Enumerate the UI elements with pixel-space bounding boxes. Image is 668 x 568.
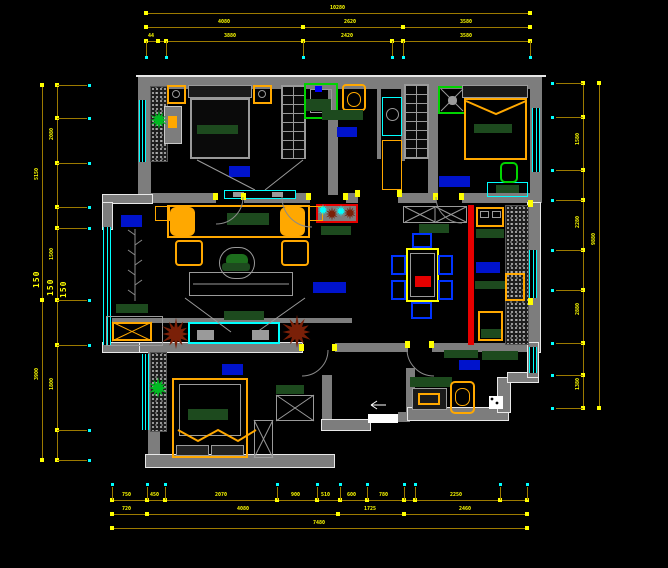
dimension-tick bbox=[40, 458, 44, 462]
door-marker bbox=[355, 190, 360, 197]
dimension-tick bbox=[597, 406, 601, 410]
witness-dot bbox=[551, 342, 554, 345]
extension-line bbox=[556, 290, 583, 291]
dimension-text: 2250 bbox=[450, 493, 462, 498]
extension-line bbox=[147, 487, 148, 500]
dimension-line bbox=[146, 27, 530, 28]
glazing-line bbox=[142, 100, 143, 162]
extension-line bbox=[57, 228, 87, 229]
bed-drawer bbox=[176, 445, 209, 456]
witness-dot bbox=[551, 374, 554, 377]
kitchen-slider bbox=[468, 205, 474, 345]
dimension-text: 750 bbox=[122, 493, 131, 498]
wall bbox=[103, 195, 152, 203]
witness-dot bbox=[88, 206, 91, 209]
witness-dot bbox=[551, 249, 554, 252]
dining-chair bbox=[412, 233, 432, 248]
dimension-text: 1580 bbox=[576, 133, 581, 145]
counter bbox=[444, 350, 478, 358]
extension-line bbox=[166, 41, 167, 57]
table-inner bbox=[410, 253, 435, 297]
coat-rack-branch bbox=[128, 250, 135, 255]
toilet-seat bbox=[347, 92, 361, 107]
dimension-text: 510 bbox=[321, 493, 330, 498]
washer-drum bbox=[386, 108, 399, 121]
dimension-line bbox=[112, 514, 527, 515]
witness-dot bbox=[88, 117, 91, 120]
closet-shelves bbox=[404, 84, 429, 159]
witness-dot bbox=[551, 169, 554, 172]
chair bbox=[500, 162, 518, 183]
witness-dot bbox=[146, 483, 149, 486]
media-shelf bbox=[224, 311, 264, 320]
extension-line bbox=[404, 487, 405, 500]
glazing-line bbox=[142, 354, 143, 430]
sink-basin bbox=[492, 211, 501, 218]
extension-line bbox=[57, 118, 87, 119]
entry-door bbox=[368, 414, 398, 423]
door-marker bbox=[213, 193, 218, 200]
door-marker bbox=[405, 341, 410, 348]
dimension-tick bbox=[525, 526, 529, 530]
dimension-text: 10280 bbox=[330, 6, 345, 11]
extension-line bbox=[527, 487, 528, 500]
dimension-tick bbox=[402, 512, 406, 516]
extension-line bbox=[57, 345, 87, 346]
counter bbox=[475, 281, 506, 289]
witness-dot bbox=[276, 483, 279, 486]
witness-dot bbox=[391, 56, 394, 59]
sofa-arm bbox=[280, 207, 305, 236]
dimension-text: 1800 bbox=[50, 378, 55, 390]
dimension-tick bbox=[144, 25, 148, 29]
armchair bbox=[281, 240, 309, 266]
witness-dot bbox=[88, 84, 91, 87]
side-table bbox=[155, 206, 170, 221]
cad-floor-plan-canvas[interactable]: 1028040802620358044388024203580750450207… bbox=[0, 0, 668, 568]
dimension-text: 2080 bbox=[50, 128, 55, 140]
coat-rack-branch bbox=[135, 260, 142, 265]
wardrobe bbox=[276, 395, 314, 421]
dimension-text: 2620 bbox=[344, 20, 356, 25]
glazing-line bbox=[532, 108, 533, 172]
window bbox=[529, 250, 537, 298]
bathroom-a-label bbox=[337, 127, 357, 137]
dimension-text: 150 bbox=[33, 271, 41, 288]
dimension-text: 44 bbox=[148, 34, 154, 39]
dining-chair bbox=[391, 255, 406, 275]
dimension-text: 4080 bbox=[237, 507, 249, 512]
dresser-knob bbox=[168, 116, 177, 128]
bathroom-b-label bbox=[459, 360, 480, 370]
door-marker bbox=[299, 344, 304, 351]
decor-line bbox=[371, 405, 377, 409]
dimension-text: 1725 bbox=[364, 507, 376, 512]
dimension-text: 3900 bbox=[35, 368, 40, 380]
pillow bbox=[474, 124, 512, 133]
door-marker bbox=[241, 193, 246, 200]
dining-chair bbox=[391, 280, 406, 300]
counter bbox=[410, 377, 452, 387]
coat-rack-branch bbox=[128, 230, 135, 235]
counter bbox=[322, 110, 363, 120]
sofa-arm bbox=[170, 207, 195, 236]
tv bbox=[252, 330, 269, 340]
desk-top bbox=[496, 185, 519, 193]
extension-line bbox=[303, 41, 304, 57]
wardrobe bbox=[281, 85, 306, 159]
dimension-line bbox=[57, 85, 58, 460]
dining-chair bbox=[438, 280, 453, 300]
witness-dot bbox=[88, 459, 91, 462]
dimension-tick bbox=[528, 25, 532, 29]
window bbox=[142, 354, 149, 430]
extension-line bbox=[530, 41, 531, 57]
dimension-line bbox=[112, 500, 527, 501]
counter bbox=[482, 351, 518, 360]
witness-dot bbox=[551, 407, 554, 410]
shelf bbox=[276, 385, 304, 394]
extension-line bbox=[277, 487, 278, 500]
witness-dot bbox=[403, 483, 406, 486]
witness-dot bbox=[164, 483, 167, 486]
extension-line bbox=[556, 83, 583, 84]
wall bbox=[322, 420, 370, 430]
witness-dot bbox=[111, 483, 114, 486]
door-marker bbox=[397, 190, 402, 197]
fan-hub bbox=[448, 96, 457, 105]
coat-rack-branch bbox=[135, 240, 142, 245]
armchair bbox=[175, 240, 203, 266]
glazing-line bbox=[539, 108, 540, 172]
wall bbox=[103, 203, 112, 229]
counter bbox=[476, 229, 504, 238]
dimension-line bbox=[583, 83, 584, 408]
dimension-text: 3580 bbox=[460, 20, 472, 25]
wall bbox=[352, 343, 408, 352]
extension-line bbox=[112, 487, 113, 500]
dimension-text: 600 bbox=[347, 493, 356, 498]
counter bbox=[481, 329, 501, 338]
bed-headboard bbox=[462, 85, 528, 98]
decor-line bbox=[265, 160, 303, 190]
wall bbox=[335, 343, 352, 352]
witness-dot bbox=[551, 289, 554, 292]
extension-line bbox=[57, 163, 87, 164]
window bbox=[529, 347, 537, 373]
dimension-line bbox=[146, 13, 530, 14]
planter bbox=[116, 304, 148, 313]
living-room-label bbox=[313, 282, 346, 293]
door-marker bbox=[459, 193, 464, 200]
glazing-line bbox=[529, 347, 530, 373]
wardrobe bbox=[254, 420, 273, 458]
coat-rack-branch bbox=[135, 280, 142, 285]
dimension-text: 9880 bbox=[592, 233, 597, 245]
dimension-text: 450 bbox=[150, 493, 159, 498]
door-marker bbox=[528, 298, 533, 305]
dimension-tick bbox=[401, 25, 405, 29]
dimension-tick bbox=[145, 512, 149, 516]
dimension-text: 3880 bbox=[224, 34, 236, 39]
extension-line bbox=[556, 250, 583, 251]
floor-drain bbox=[489, 396, 503, 409]
extension-line bbox=[556, 343, 583, 344]
dimension-tick bbox=[144, 11, 148, 15]
extension-line bbox=[556, 200, 583, 201]
door-swing-arc bbox=[302, 350, 328, 376]
lamp bbox=[258, 90, 266, 98]
witness-dot bbox=[88, 227, 91, 230]
witness-dot bbox=[366, 483, 369, 486]
door-marker bbox=[528, 200, 533, 207]
dimension-text: 720 bbox=[122, 507, 131, 512]
extension-line bbox=[146, 41, 147, 57]
glazing-line bbox=[533, 347, 534, 373]
glazing-line bbox=[536, 347, 537, 373]
dimension-text: 150 bbox=[47, 279, 55, 296]
extension-line bbox=[403, 41, 404, 57]
witness-dot bbox=[551, 82, 554, 85]
witness-dot bbox=[316, 483, 319, 486]
door-marker bbox=[429, 341, 434, 348]
wall bbox=[140, 343, 302, 352]
cabinet bbox=[382, 140, 402, 190]
bench bbox=[112, 322, 152, 341]
glazing-line bbox=[533, 250, 534, 298]
wall bbox=[398, 193, 436, 203]
witness-dot bbox=[414, 483, 417, 486]
dimension-text: 2280 bbox=[576, 216, 581, 228]
witness-dot bbox=[88, 162, 91, 165]
extension-line bbox=[57, 460, 87, 461]
dimension-text: 1380 bbox=[576, 378, 581, 390]
witness-dot bbox=[551, 199, 554, 202]
door-marker bbox=[332, 344, 337, 351]
dimension-text: 1500 bbox=[50, 248, 55, 260]
bedroom-b-label bbox=[439, 176, 470, 187]
tv bbox=[197, 330, 214, 340]
pillow bbox=[188, 409, 228, 420]
pillow bbox=[197, 125, 238, 134]
extension-line bbox=[57, 300, 87, 301]
wall bbox=[428, 89, 438, 195]
extension-line bbox=[367, 487, 368, 500]
witness-dot bbox=[302, 56, 305, 59]
extension-line bbox=[556, 408, 583, 409]
dimension-text: 2420 bbox=[341, 34, 353, 39]
extension-line bbox=[392, 41, 393, 57]
witness-dot bbox=[88, 344, 91, 347]
extension-line bbox=[57, 207, 87, 208]
dimension-line bbox=[42, 85, 43, 460]
feature-wall-hatch bbox=[150, 352, 167, 432]
bay-window-label bbox=[121, 215, 142, 227]
door-marker bbox=[343, 193, 348, 200]
dimension-line bbox=[112, 528, 527, 529]
glazing-line bbox=[536, 108, 537, 172]
glazing-line bbox=[103, 227, 104, 345]
witness-dot bbox=[402, 56, 405, 59]
dimension-text: 4080 bbox=[218, 20, 230, 25]
plant-shelf bbox=[419, 224, 449, 233]
dimension-text: 2880 bbox=[576, 303, 581, 315]
tv bbox=[272, 192, 283, 197]
witness-dot bbox=[165, 56, 168, 59]
glazing-line bbox=[145, 354, 146, 430]
dimension-tick bbox=[301, 25, 305, 29]
bedroom-a-label bbox=[229, 166, 250, 177]
table-center bbox=[415, 276, 431, 287]
witness-dot bbox=[499, 483, 502, 486]
wall bbox=[377, 89, 381, 159]
dimension-text: 3580 bbox=[460, 34, 472, 39]
window bbox=[139, 100, 146, 162]
dimension-tick bbox=[40, 298, 44, 302]
extension-line bbox=[415, 487, 416, 500]
decor-line bbox=[371, 401, 377, 405]
shoe-cabinet bbox=[403, 206, 467, 223]
lamp bbox=[172, 90, 180, 98]
dimension-tick bbox=[525, 512, 529, 516]
dining-chair bbox=[438, 255, 453, 275]
extension-line bbox=[556, 375, 583, 376]
dimension-tick bbox=[40, 83, 44, 87]
dining-chair bbox=[411, 302, 432, 319]
dimension-line bbox=[146, 41, 530, 42]
glazing-line bbox=[148, 354, 149, 430]
door-marker bbox=[306, 193, 311, 200]
dimension-text: 2460 bbox=[459, 507, 471, 512]
vanity-handle bbox=[418, 393, 440, 405]
glazing-line bbox=[536, 250, 537, 298]
extension-line bbox=[57, 430, 87, 431]
extension-line bbox=[317, 487, 318, 500]
bed-drawer bbox=[211, 445, 244, 456]
dimension-tick bbox=[110, 526, 114, 530]
dimension-tick bbox=[597, 81, 601, 85]
witness-dot bbox=[145, 56, 148, 59]
dimension-text: 2070 bbox=[215, 493, 227, 498]
dimension-tick bbox=[110, 512, 114, 516]
door-marker bbox=[433, 193, 438, 200]
extension-line bbox=[556, 117, 583, 118]
extension-line bbox=[340, 487, 341, 500]
dimension-tick bbox=[528, 11, 532, 15]
dimension-text: 780 bbox=[379, 493, 388, 498]
dimension-line bbox=[599, 83, 600, 408]
kitchen-label bbox=[476, 262, 500, 273]
coat-rack-branch bbox=[128, 290, 135, 295]
witness-dot bbox=[88, 299, 91, 302]
glazing-line bbox=[145, 100, 146, 162]
witness-dot bbox=[529, 56, 532, 59]
dimension-text: 5150 bbox=[35, 168, 40, 180]
sofa-cushion bbox=[227, 213, 269, 225]
plant-leaf bbox=[222, 263, 250, 271]
shower-head bbox=[315, 86, 322, 92]
witness-dot bbox=[339, 483, 342, 486]
dimension-text: 150 bbox=[60, 281, 68, 298]
dimension-text: 900 bbox=[291, 493, 300, 498]
extension-line bbox=[556, 170, 583, 171]
bed-headboard bbox=[188, 85, 252, 98]
witness-dot bbox=[88, 429, 91, 432]
witness-dot bbox=[526, 483, 529, 486]
window bbox=[532, 108, 540, 172]
extension-line bbox=[500, 487, 501, 500]
dimension-tick bbox=[156, 39, 160, 43]
witness-dot bbox=[551, 116, 554, 119]
extension-line bbox=[57, 85, 87, 86]
sink-basin bbox=[480, 211, 489, 218]
dimension-text: 7480 bbox=[313, 521, 325, 526]
dimension-tick bbox=[336, 512, 340, 516]
toilet-tank bbox=[455, 388, 470, 406]
extension-line bbox=[165, 487, 166, 500]
appliance bbox=[505, 273, 525, 301]
coat-rack-branch bbox=[128, 270, 135, 275]
glazing-line bbox=[529, 250, 530, 298]
plant-shelf bbox=[321, 226, 351, 235]
bedroom-c-label bbox=[222, 364, 243, 375]
glazing-line bbox=[139, 100, 140, 162]
side-table bbox=[308, 206, 323, 221]
